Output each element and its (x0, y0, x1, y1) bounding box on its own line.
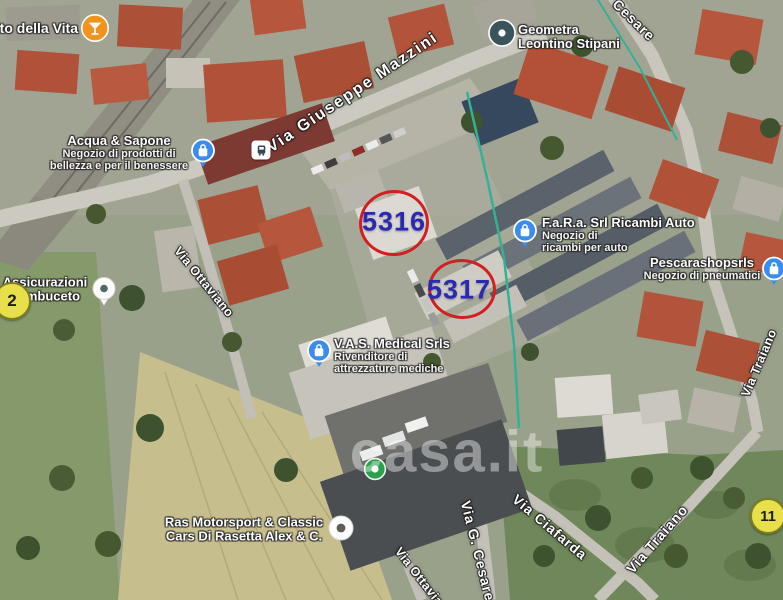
poi-label-vas-medical[interactable]: V.A.S. Medical Srls Rivenditore di attre… (334, 337, 450, 375)
poi-subtitle: Rivenditore di (334, 352, 450, 363)
poi-title: Leontino Stipani (518, 37, 620, 51)
poi-label-acqua-sapone[interactable]: Acqua & Sapone Negozio di prodotti di be… (50, 134, 188, 172)
poi-subtitle: Negozio di prodotti di (50, 149, 188, 160)
poi-title: to della Vita (0, 21, 78, 36)
shopping-bag-pin-icon[interactable] (190, 138, 216, 168)
poi-subtitle: Negozio di pneumatici (644, 271, 761, 282)
cluster-marker-count: 11 (760, 508, 776, 525)
poi-label-della-vita[interactable]: to della Vita (0, 21, 78, 36)
poi-label-geometra-leontino-stipani[interactable]: Geometra Leontino Stipani (518, 23, 620, 50)
poi-label-pescarashopsrls[interactable]: Pescarashopsrls Negozio di pneumatici (644, 256, 761, 282)
poi-title: Geometra (518, 23, 620, 37)
cocktail-pin-icon[interactable] (80, 13, 110, 43)
poi-title: V.A.S. Medical Srls (334, 337, 450, 351)
shopping-bag-pin-icon[interactable] (512, 218, 538, 248)
casa-it-watermark: casa.it (350, 419, 545, 486)
poi-subtitle: Negozio di (542, 231, 695, 242)
cluster-marker-11[interactable]: 11 (750, 498, 783, 534)
cluster-marker-count: 2 (7, 291, 16, 311)
poi-title: Cars Di Rasetta Alex & C. (165, 529, 323, 543)
poi-title: F.a.R.a. Srl Ricambi Auto (542, 216, 695, 230)
bus-stop-icon[interactable] (252, 141, 271, 160)
poi-title: Acqua & Sapone (50, 134, 188, 148)
parcel-5316-number[interactable]: 5316 (362, 207, 426, 238)
satellite-map-canvas[interactable]: Via Giuseppe Mazzini Cesare Via Ottavian… (0, 0, 783, 600)
shopping-bag-pin-icon[interactable] (761, 256, 783, 286)
white-dot-pin-icon[interactable] (328, 515, 355, 542)
shopping-bag-pin-icon[interactable] (306, 338, 332, 368)
parcel-5317-number[interactable]: 5317 (427, 275, 491, 306)
white-dot-pin-icon[interactable] (91, 276, 117, 307)
poi-title: Ras Motorsport & Classic (165, 515, 323, 529)
poi-subtitle: ricambi per auto (542, 243, 695, 254)
dot-pin-icon[interactable] (487, 18, 517, 48)
poi-title: Pescarashopsrls (644, 256, 761, 270)
poi-subtitle: bellezza e per il benessere (50, 161, 188, 172)
satellite-imagery (0, 0, 783, 600)
poi-label-fara-ricambi-auto[interactable]: F.a.R.a. Srl Ricambi Auto Negozio di ric… (542, 216, 695, 254)
poi-label-ras-motorsport[interactable]: Ras Motorsport & Classic Cars Di Rasetta… (165, 515, 323, 542)
poi-subtitle: attrezzature mediche (334, 364, 450, 375)
